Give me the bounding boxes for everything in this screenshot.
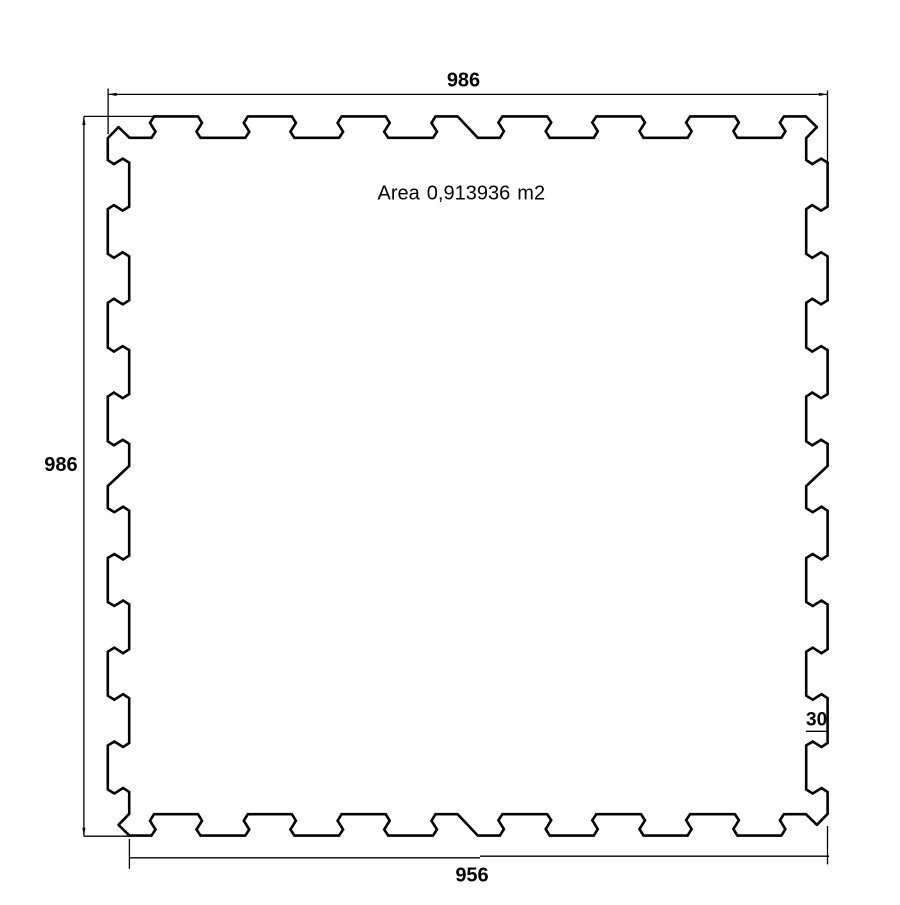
svg-text:956: 956 [455, 864, 488, 886]
svg-text:986: 986 [447, 70, 480, 92]
svg-text:30: 30 [806, 710, 827, 731]
svg-text:986: 986 [44, 454, 77, 476]
svg-text:Area 0,913936 m2: Area 0,913936 m2 [378, 183, 546, 205]
